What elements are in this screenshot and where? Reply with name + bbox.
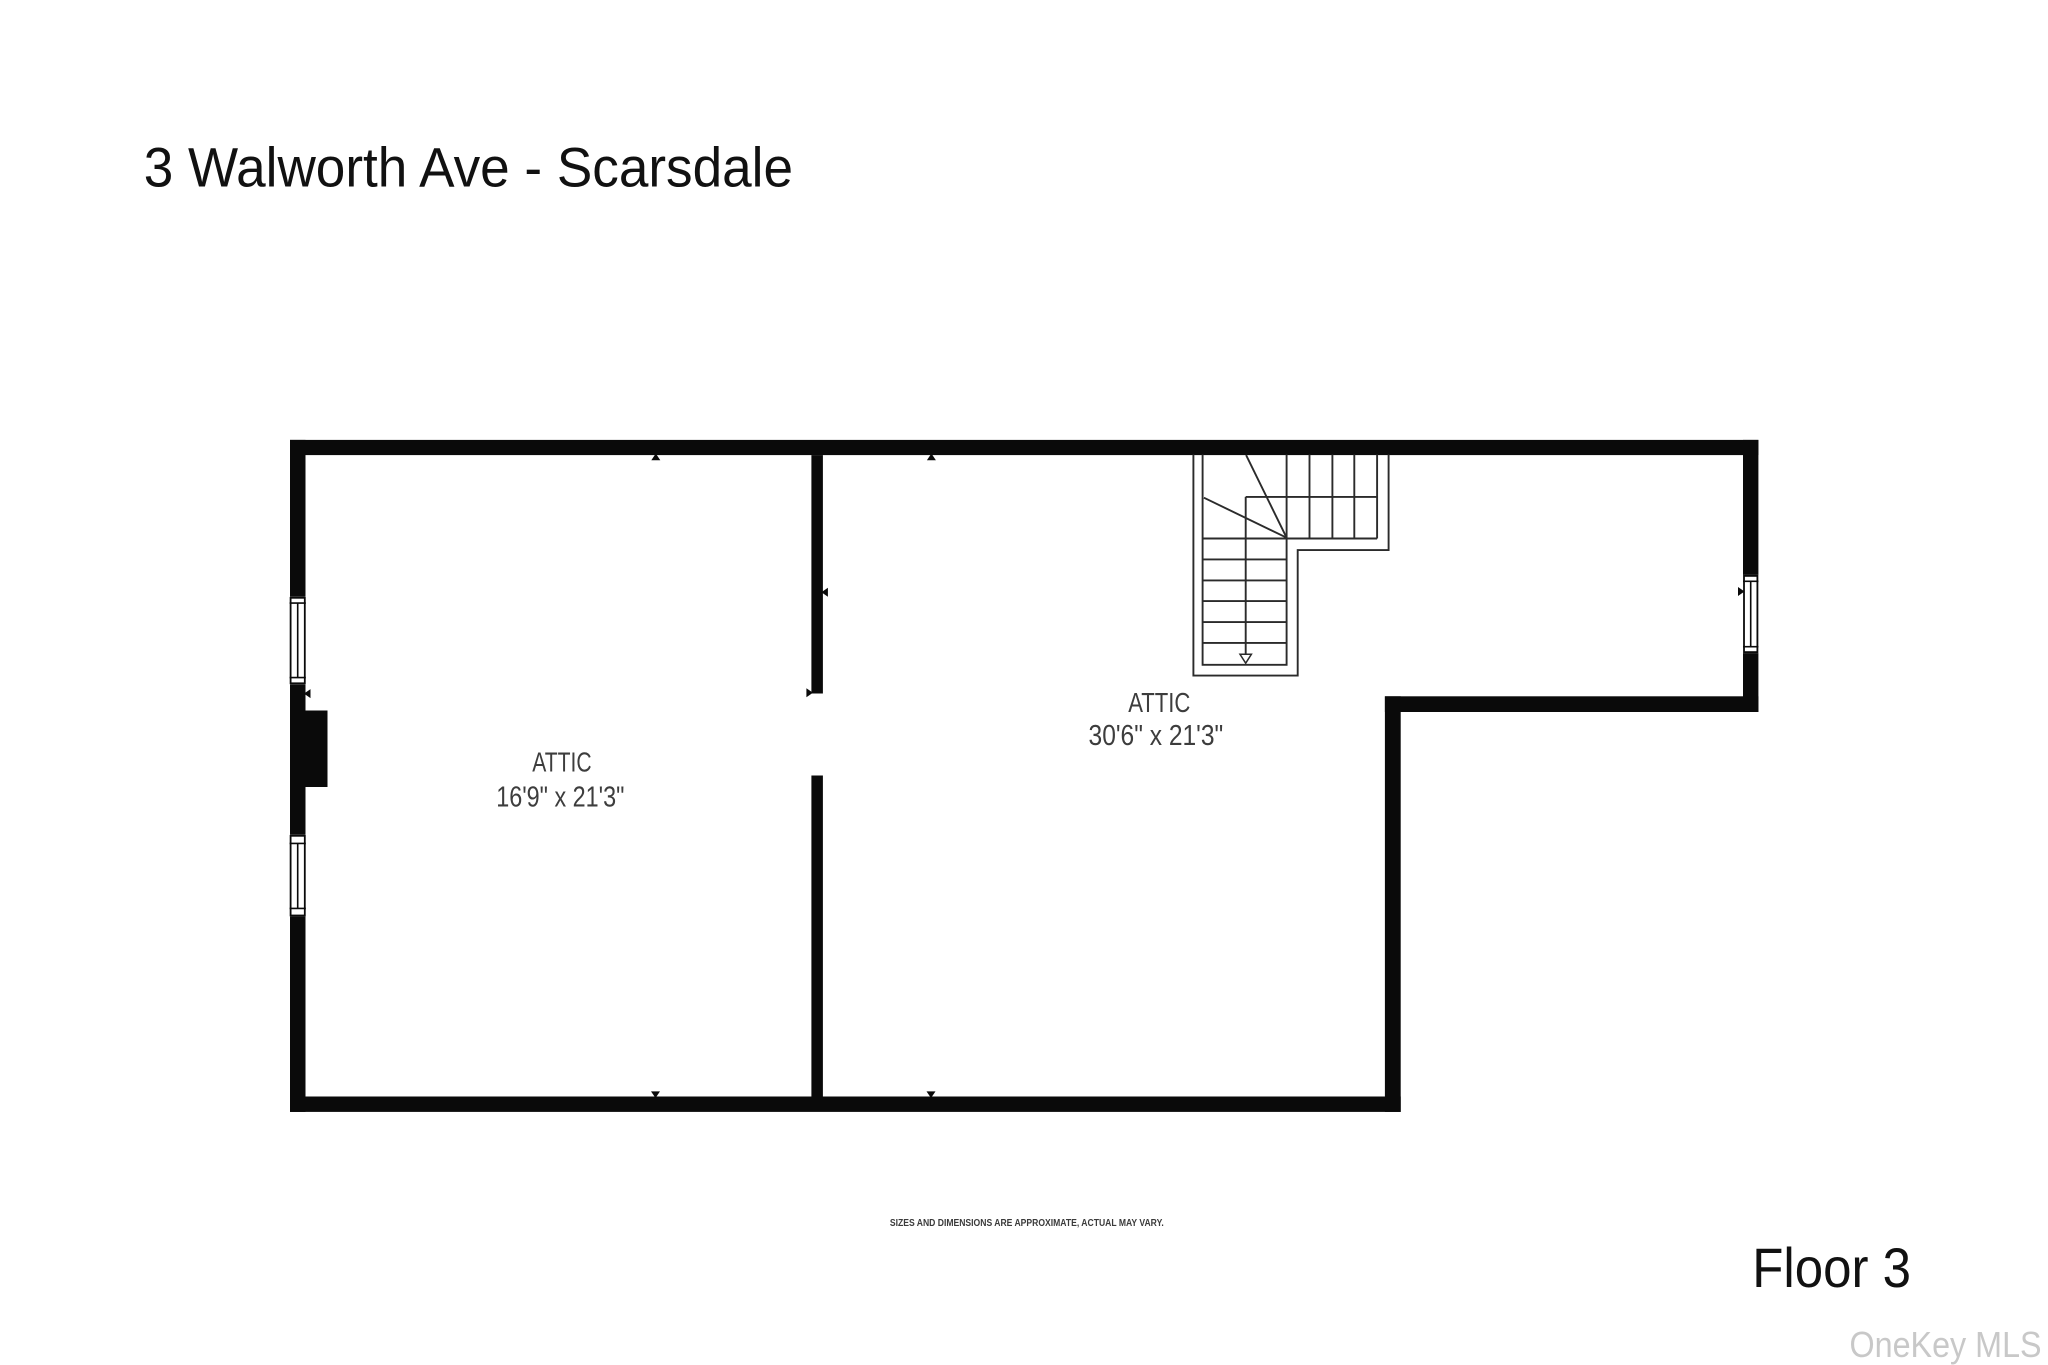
- svg-text:SIZES AND DIMENSIONS ARE APPRO: SIZES AND DIMENSIONS ARE APPROXIMATE, AC…: [890, 1217, 1164, 1229]
- svg-text:16'9" x 21'3": 16'9" x 21'3": [496, 782, 624, 814]
- svg-text:30'6" x 21'3": 30'6" x 21'3": [1089, 720, 1224, 752]
- svg-text:Floor 3: Floor 3: [1752, 1236, 1911, 1299]
- svg-text:OneKey MLS: OneKey MLS: [1850, 1324, 2042, 1365]
- svg-text:ATTIC: ATTIC: [532, 747, 591, 778]
- svg-text:3 Walworth Ave - Scarsdale: 3 Walworth Ave - Scarsdale: [144, 136, 793, 199]
- svg-text:ATTIC: ATTIC: [1128, 687, 1190, 718]
